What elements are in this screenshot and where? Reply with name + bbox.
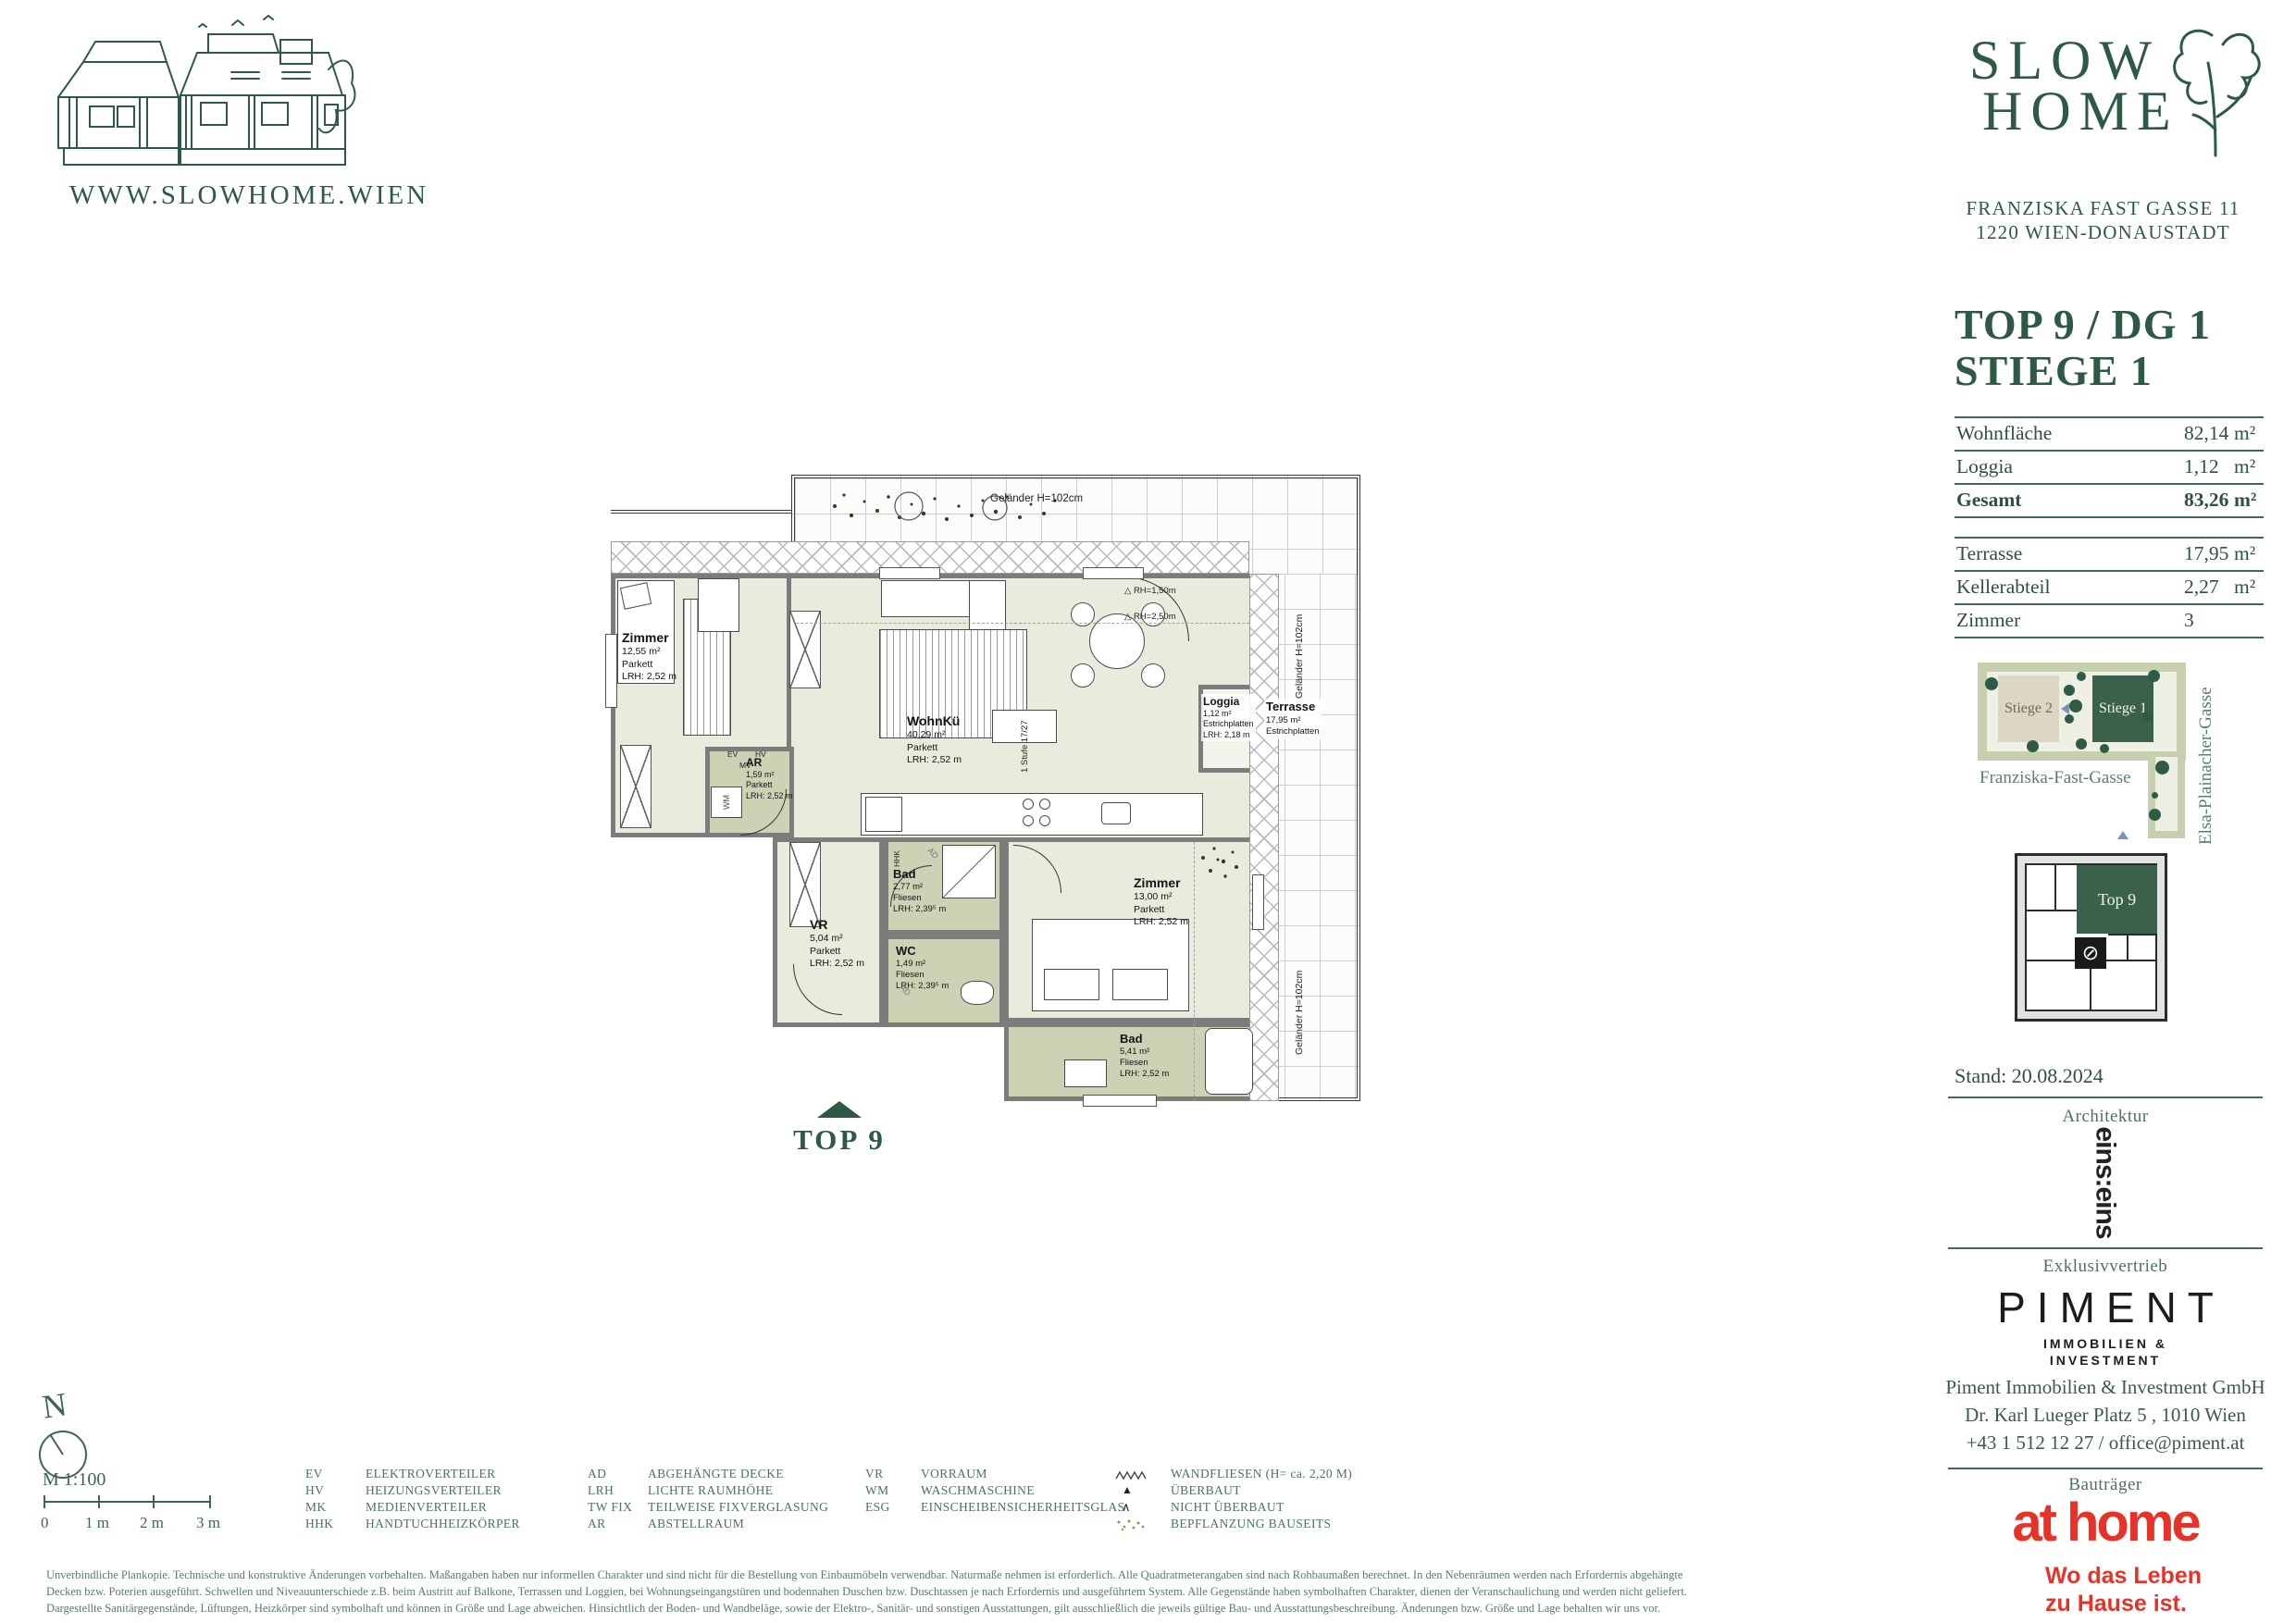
website-url: WWW.SLOWHOME.WIEN: [69, 180, 428, 211]
tree-dot: [2142, 711, 2153, 722]
scale-bar: 0 1 m 2 m 3 m: [43, 1494, 246, 1532]
einszueins-logo-text: eins:eins: [2090, 1126, 2121, 1238]
scale-tick-3: 3 m: [196, 1514, 220, 1532]
hob-burner: [1039, 815, 1050, 826]
label-zimmer2: Zimmer 13,00 m² Parkett LRH: 2,52 m: [1134, 874, 1188, 929]
top9-marker-label: TOP 9: [751, 1123, 927, 1157]
label-bad2: Bad 5,41 m² Fliesen LRH: 2,52 m: [1120, 1032, 1169, 1080]
address-line1: FRANZISKA FAST GASSE 11: [1943, 196, 2263, 220]
logo-text-home: HOME: [1982, 86, 2179, 137]
tree-dot: [1985, 677, 1998, 690]
legend-abbr: HV: [305, 1483, 324, 1498]
gelaender-right-upper-label: Geländer H=102cm: [1294, 588, 1305, 699]
rh250-label: △ RH=2,50m: [1124, 612, 1176, 622]
table-row: Zimmer 3: [1955, 603, 2264, 638]
shaft-xbox: [789, 842, 821, 927]
row-label: Wohnfläche: [1956, 422, 2184, 445]
shaft-xbox: [620, 745, 652, 828]
ueberbaut-triangle-icon: ▲: [1122, 1483, 1133, 1497]
row-value: 3: [2184, 609, 2234, 632]
label-wohnkueche: WohnKü 40,29 m² Parkett LRH: 2,52 m: [907, 712, 962, 767]
row-unit: m²: [2234, 576, 2265, 599]
project-address: FRANZISKA FAST GASSE 11 1220 WIEN-DONAUS…: [1943, 196, 2263, 245]
window: [605, 634, 617, 708]
hv-label: HV: [755, 750, 766, 759]
athome-tagline: Wo das Leben zu Hause ist.: [2045, 1562, 2202, 1617]
stiege1-label: Stiege 1: [2099, 700, 2147, 717]
tree-dot: [2155, 761, 2169, 774]
ev-label: EV: [727, 750, 738, 759]
legend-abbr: TW FIX: [588, 1500, 632, 1515]
wandfliesen-zigzag-icon: [1115, 1469, 1148, 1484]
row-value: 1,12: [2184, 455, 2234, 478]
legend-name: MEDIENVERTEILER: [366, 1500, 487, 1515]
table-row-total: Gesamt 83,26 m²: [1955, 483, 2264, 518]
legend-name: TEILWEISE FIXVERGLASUNG: [648, 1500, 828, 1515]
entrance-arrow-icon: [2061, 703, 2069, 714]
floorplan-sheet: WWW.SLOWHOME.WIEN SLOW HOME FRANZISKA FA…: [0, 0, 2296, 1623]
tagline-line1: Wo das Leben: [2045, 1562, 2202, 1590]
toilet: [961, 981, 994, 1005]
site-stiege1-block: Stiege 1: [2092, 675, 2153, 742]
scale-ratio: M 1:100: [43, 1469, 105, 1491]
row-label: Gesamt: [1956, 489, 2184, 512]
legend-name: BEPFLANZUNG BAUSEITS: [1171, 1517, 1331, 1531]
stair-core-icon: ⊘: [2075, 937, 2106, 969]
divider-line: [1948, 1247, 2263, 1249]
table-row: Terrasse 17,95 m²: [1955, 537, 2264, 570]
legend-name: ÜBERBAUT: [1171, 1483, 1241, 1498]
divider-line: [1948, 1468, 2263, 1469]
legend-abbr: MK: [305, 1500, 327, 1515]
company-name: Piment Immobilien & Investment GmbH: [1920, 1373, 2290, 1401]
label-vr: VR 5,04 m² Parkett LRH: 2,52 m: [810, 916, 864, 971]
wm-label: WM: [722, 795, 731, 810]
chair: [1071, 663, 1095, 688]
row-value: 17,95: [2184, 542, 2234, 565]
legend-abbr: AR: [588, 1517, 606, 1531]
disclaimer-line3: Dargestellte Sanitärgegenstände, Lüftung…: [46, 1602, 1660, 1616]
chair: [698, 578, 739, 632]
tree-dot: [2152, 792, 2158, 799]
piment-contact-block: Piment Immobilien & Investment GmbH Dr. …: [1920, 1373, 2290, 1456]
legend-name: HANDTUCHHEIZKÖRPER: [366, 1517, 520, 1531]
site-plan: Stiege 2 Stiege 1 Franziska-Fast-Gasse E…: [1976, 659, 2263, 849]
street-label-bottom: Franziska-Fast-Gasse: [1980, 768, 2131, 788]
chair: [1141, 663, 1165, 688]
entrance-triangle-icon: [817, 1101, 862, 1118]
tree-dot: [2077, 672, 2086, 681]
label-ar: AR 1,59 m² Parkett LRH: 2,52 m: [746, 756, 793, 801]
legend-abbr: EV: [305, 1467, 323, 1481]
unit-title-line2: STIEGE 1: [1955, 348, 2211, 394]
bepflanzung-dots-icon: [1115, 1518, 1147, 1535]
scale-tick-2: 2 m: [140, 1514, 164, 1532]
label-zimmer1: Zimmer 12,55 m² Parkett LRH: 2,52 m: [622, 629, 676, 684]
scale-tick-1: 1 m: [85, 1514, 109, 1532]
section-exklusivvertrieb: Exklusivvertrieb: [1948, 1257, 2263, 1277]
mv-label: MV: [739, 761, 751, 770]
legend-abbr: LRH: [588, 1483, 614, 1498]
tree-dot: [2148, 670, 2160, 682]
key-plan-top9-block: Top 9: [2077, 865, 2157, 934]
hob-burner: [1023, 815, 1034, 826]
legend-name: WASCHMASCHINE: [921, 1483, 1035, 1498]
pillow: [1112, 969, 1168, 1000]
tree-dot: [2069, 700, 2082, 712]
tree-dot: [2149, 809, 2161, 821]
row-unit: m²: [2234, 542, 2265, 565]
gelaender-right-lower-label: Geländer H=102cm: [1294, 944, 1305, 1055]
stiege2-label: Stiege 2: [2004, 700, 2053, 717]
legend-name: NICHT ÜBERBAUT: [1171, 1500, 1285, 1515]
hob-burner: [1039, 799, 1050, 810]
window: [1083, 1095, 1157, 1107]
label-loggia: Loggia 1,12 m² Estrichplatten LRH: 2,18 …: [1201, 694, 1256, 741]
einszueins-logo: eins:eins: [1948, 1127, 2263, 1238]
legend-name: HEIZUNGSVERTEILER: [366, 1483, 502, 1498]
street-label-right: Elsa-Plainacher-Gasse: [2196, 655, 2216, 845]
window: [1252, 874, 1264, 930]
table-row: Loggia 1,12 m²: [1955, 450, 2264, 483]
houses-illustration: [51, 14, 356, 171]
legend-abbr: ESG: [865, 1500, 890, 1515]
nicht-ueberbaut-chevron-icon: ∧: [1122, 1500, 1131, 1515]
rh150-label: △ RH=1,50m: [1124, 586, 1176, 596]
tree-dot: [2064, 685, 2075, 696]
row-label: Zimmer: [1956, 609, 2184, 632]
hob-burner: [1023, 799, 1034, 810]
legend-abbr: VR: [865, 1467, 884, 1481]
key-plan-unit-label: Top 9: [2098, 890, 2136, 910]
row-unit: m²: [2234, 489, 2265, 512]
top9-entrance-marker: TOP 9: [751, 1101, 927, 1157]
plan-date: Stand: 20.08.2024: [1955, 1064, 2104, 1088]
ceiling-dashed-line: [796, 623, 1249, 624]
label-terrasse: Terrasse 17,95 m² Estrichplatten: [1264, 699, 1322, 739]
disclaimer-line2: Decken bzw. Poterien ausgeführt. Schwell…: [46, 1585, 1687, 1599]
slowhome-logo: SLOW HOME: [1969, 35, 2179, 137]
row-value: 82,14: [2184, 422, 2234, 445]
tagline-line2: zu Hause ist.: [2045, 1590, 2202, 1617]
tree-dot: [2065, 714, 2074, 724]
row-unit: m²: [2234, 455, 2265, 478]
stufe-label: 1 Stufe 17/27: [1020, 720, 1030, 773]
kitchen-cabinet: [865, 797, 902, 832]
address-line2: 1220 WIEN-DONAUSTADT: [1943, 220, 2263, 244]
row-value: 2,27: [2184, 576, 2234, 599]
area-table: Wohnfläche 82,14 m² Loggia 1,12 m² Gesam…: [1955, 416, 2264, 638]
legend-name: ABSTELLRAUM: [648, 1517, 744, 1531]
row-unit: [2234, 609, 2265, 632]
athome-logo: at home: [1948, 1492, 2263, 1554]
unit-title-line1: TOP 9 / DG 1: [1955, 302, 2211, 348]
bathtub: [1205, 1028, 1253, 1095]
pillow: [1044, 969, 1099, 1000]
divider-line: [1948, 1096, 2263, 1098]
floor-plan: WM: [602, 467, 1388, 1115]
row-unit: m²: [2234, 422, 2265, 445]
legend-abbr: WM: [865, 1483, 889, 1498]
site-stiege2-block: Stiege 2: [1998, 675, 2059, 742]
legend-name: VORRAUM: [921, 1467, 987, 1481]
legend-abbr: AD: [588, 1467, 606, 1481]
tree-dot: [2027, 740, 2039, 752]
legend-abbr: HHK: [305, 1517, 333, 1531]
tree-dot: [2076, 738, 2087, 750]
legend-name: EINSCHEIBENSICHERHEITSGLAS: [921, 1500, 1124, 1515]
logo-text-slow: SLOW: [1969, 35, 2179, 86]
table-row: Kellerabteil 2,27 m²: [1955, 570, 2264, 603]
shower: [942, 845, 996, 898]
tree-icon: [2167, 20, 2265, 164]
window: [879, 567, 940, 579]
scale-tick-0: 0: [41, 1514, 49, 1532]
disclaimer-line1: Unverbindliche Plankopie. Technische und…: [46, 1568, 1682, 1582]
row-value: 83,26: [2184, 489, 2234, 512]
label-bad1: Bad 2,77 m² Fliesen LRH: 2,39⁵ m: [893, 867, 946, 915]
key-plan: Top 9 ⊘: [2015, 853, 2167, 1022]
piment-sub2: INVESTMENT: [1948, 1353, 2263, 1368]
hhk-label: HHK: [892, 850, 901, 867]
row-label: Terrasse: [1956, 542, 2184, 565]
washbasin: [1064, 1059, 1107, 1087]
unit-title: TOP 9 / DG 1 STIEGE 1: [1955, 302, 2211, 393]
company-contact: +43 1 512 12 27 / office@piment.at: [1920, 1429, 2290, 1456]
company-address: Dr. Karl Lueger Platz 5 , 1010 Wien: [1920, 1401, 2290, 1429]
legend-name: LICHTE RAUMHÖHE: [648, 1483, 773, 1498]
sink: [1101, 802, 1131, 824]
gelaender-top-label: Geländer H=102cm: [990, 493, 1083, 504]
section-architektur: Architektur: [1948, 1107, 2263, 1127]
piment-logo: PIMENT: [1948, 1282, 2263, 1332]
washing-machine: WM: [711, 787, 742, 818]
legend-name: ABGEHÄNGTE DECKE: [648, 1467, 784, 1481]
piment-sub1: IMMOBILIEN &: [1948, 1336, 2263, 1351]
planting-cluster: [1192, 839, 1247, 890]
tree-dot: [2100, 744, 2109, 753]
table-row: Wohnfläche 82,14 m²: [1955, 416, 2264, 450]
row-label: Loggia: [1956, 455, 2184, 478]
legend-name: ELEKTROVERTEILER: [366, 1467, 496, 1481]
entrance-arrow-icon: [2117, 831, 2128, 839]
legend-name: WANDFLIESEN (H= ca. 2,20 M): [1171, 1467, 1352, 1481]
planting-cluster: [824, 478, 1083, 543]
north-letter: N: [40, 1384, 69, 1426]
row-label: Kellerabteil: [1956, 576, 2184, 599]
window: [1083, 567, 1144, 579]
roof-hatch-band-right: [1249, 574, 1279, 1101]
railing-line: [611, 510, 791, 514]
